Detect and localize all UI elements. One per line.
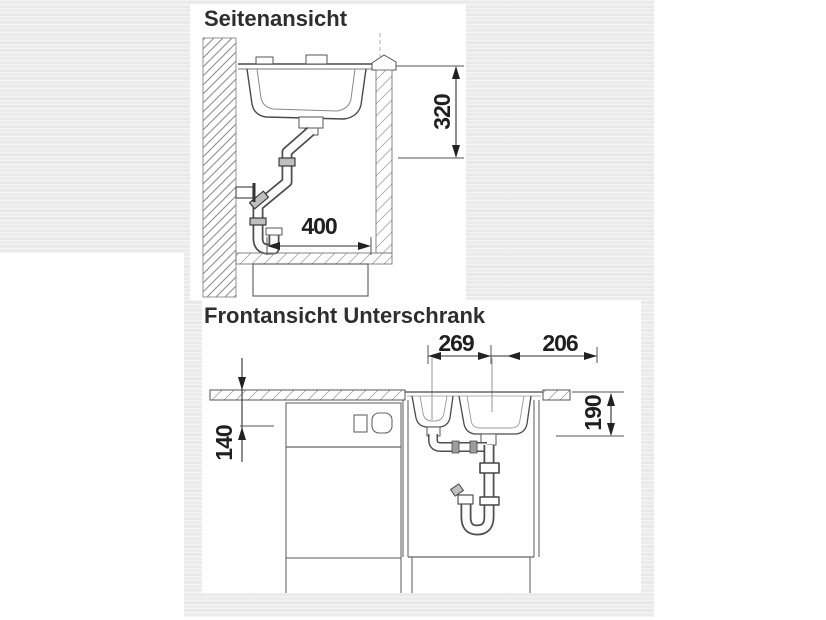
sink-bowls-front: [405, 392, 543, 445]
dim-269-label: 269: [426, 331, 486, 355]
dishwasher-front: [286, 403, 401, 593]
worktop-front-left: [210, 390, 405, 400]
dimension-400: [267, 237, 371, 255]
dishwasher-dial-icon: [372, 413, 392, 433]
dimension-140: [238, 358, 274, 462]
cabinet-plinth: [253, 264, 368, 296]
worktop-front-right: [543, 390, 570, 400]
sink-basin-side: [247, 69, 366, 135]
front-view-title: Frontansicht Unterschrank: [204, 304, 485, 328]
side-view-drawing: [203, 33, 464, 297]
siphon-front: [433, 434, 499, 530]
dim-190-label: 190: [581, 383, 605, 443]
cabinet-bottom: [236, 253, 392, 264]
spec-sheet-image: Seitenansicht Frontansicht Unterschrank …: [0, 0, 826, 620]
front-view-drawing: [210, 345, 624, 593]
dim-400-label: 400: [289, 214, 349, 238]
dim-320-label: 320: [430, 82, 454, 142]
wall-hatch: [203, 38, 236, 297]
dim-140-label: 140: [212, 413, 236, 473]
dishwasher-button-icon: [354, 415, 367, 432]
dim-206-label: 206: [530, 331, 590, 355]
cabinet-side-wall: [376, 70, 392, 253]
worktop-side: [238, 33, 396, 70]
side-view-title: Seitenansicht: [204, 7, 347, 31]
